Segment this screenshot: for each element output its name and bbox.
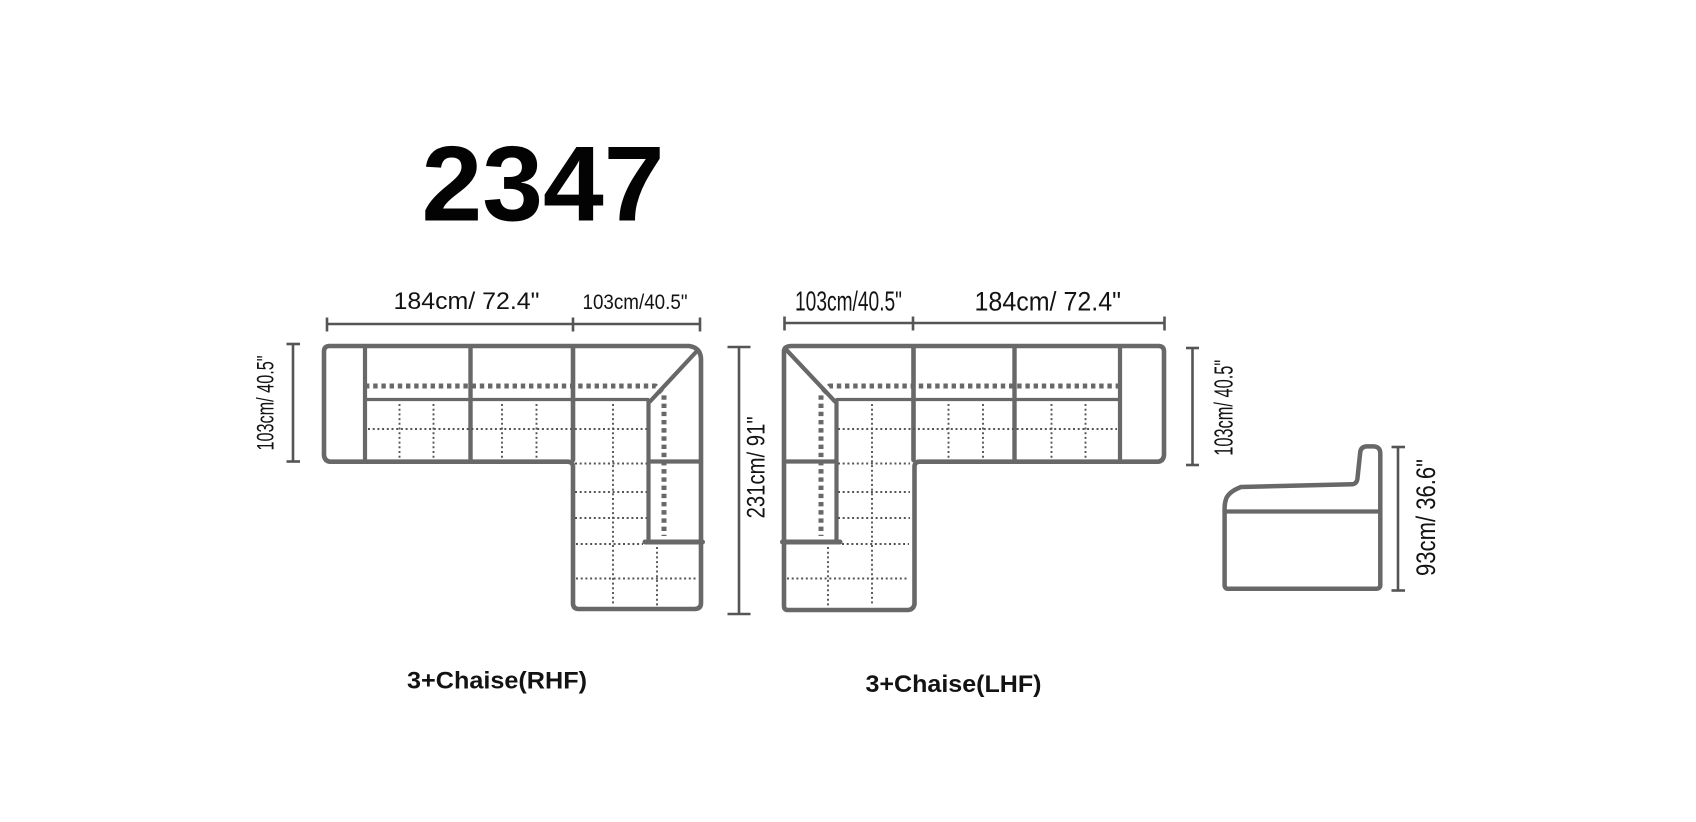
svg-text:103cm/40.5": 103cm/40.5": [583, 290, 688, 314]
svg-text:2347: 2347: [422, 124, 665, 244]
svg-text:3+Chaise(RHF): 3+Chaise(RHF): [407, 668, 587, 695]
svg-text:184cm/ 72.4": 184cm/ 72.4": [975, 287, 1122, 317]
svg-text:103cm/ 40.5": 103cm/ 40.5": [254, 356, 280, 451]
svg-text:103cm/40.5": 103cm/40.5": [795, 286, 902, 317]
svg-text:3+Chaise(LHF): 3+Chaise(LHF): [866, 671, 1042, 698]
svg-text:231cm/ 91": 231cm/ 91": [743, 416, 771, 518]
svg-text:103cm/ 40.5": 103cm/ 40.5": [1209, 360, 1239, 456]
svg-text:93cm/ 36.6": 93cm/ 36.6": [1411, 459, 1441, 576]
svg-text:184cm/ 72.4": 184cm/ 72.4": [394, 288, 540, 315]
